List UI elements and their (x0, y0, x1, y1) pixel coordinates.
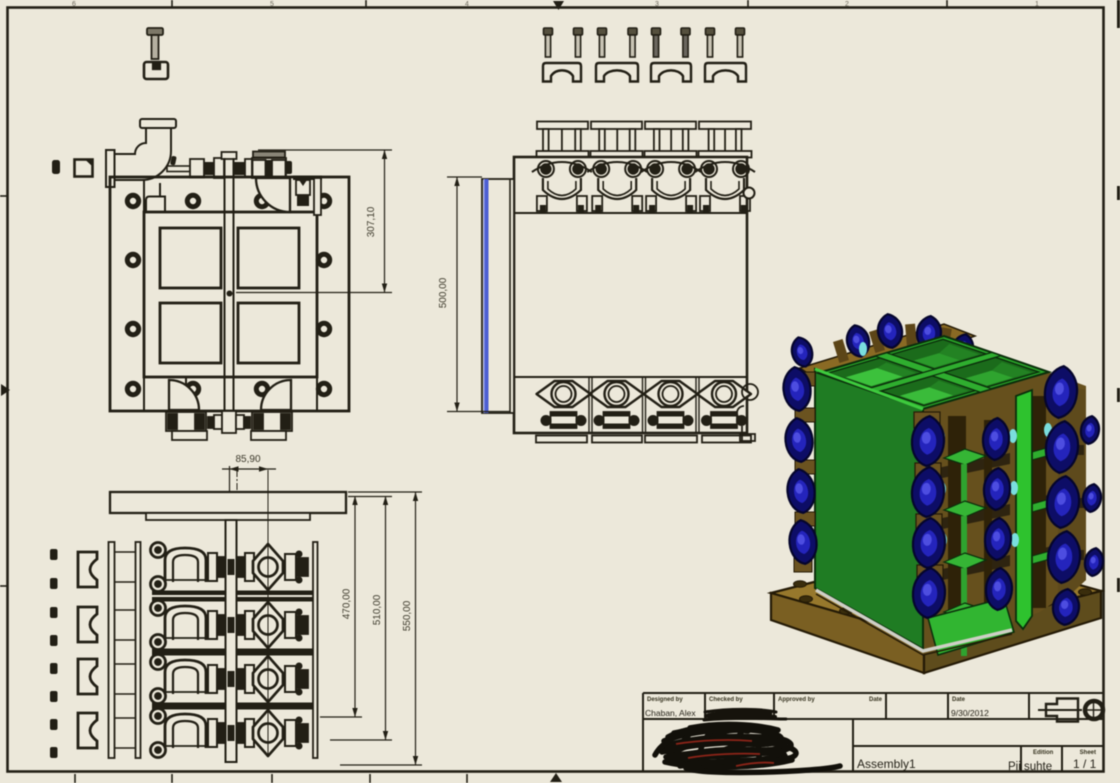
svg-text:1 / 1: 1 / 1 (1073, 757, 1097, 771)
svg-text:Assembly1: Assembly1 (857, 757, 916, 771)
svg-text:510,00: 510,00 (372, 594, 383, 625)
svg-text:Checked by: Checked by (709, 697, 743, 703)
svg-text:9/30/2012: 9/30/2012 (951, 708, 989, 718)
svg-text:3: 3 (655, 1, 659, 8)
svg-text:Sheet: Sheet (1080, 750, 1096, 756)
svg-text:550,00: 550,00 (402, 600, 413, 631)
svg-text:Pii suhte: Pii suhte (1008, 761, 1052, 773)
svg-text:5: 5 (270, 1, 274, 8)
svg-text:1: 1 (1035, 1, 1039, 8)
svg-text:500,00: 500,00 (438, 277, 449, 308)
svg-text:Edition: Edition (1033, 750, 1054, 756)
svg-text:2: 2 (845, 1, 849, 8)
svg-text:Date: Date (869, 697, 883, 703)
svg-text:307,10: 307,10 (366, 206, 377, 237)
svg-text:85,90: 85,90 (235, 454, 260, 465)
svg-text:4: 4 (465, 1, 469, 8)
svg-text:Designed by: Designed by (647, 697, 683, 703)
svg-text:470,00: 470,00 (342, 588, 353, 619)
svg-text:Approved by: Approved by (778, 697, 815, 703)
svg-text:6: 6 (72, 1, 76, 8)
svg-text:Date: Date (952, 697, 966, 703)
svg-text:Chaban, Alex: Chaban, Alex (645, 708, 696, 718)
